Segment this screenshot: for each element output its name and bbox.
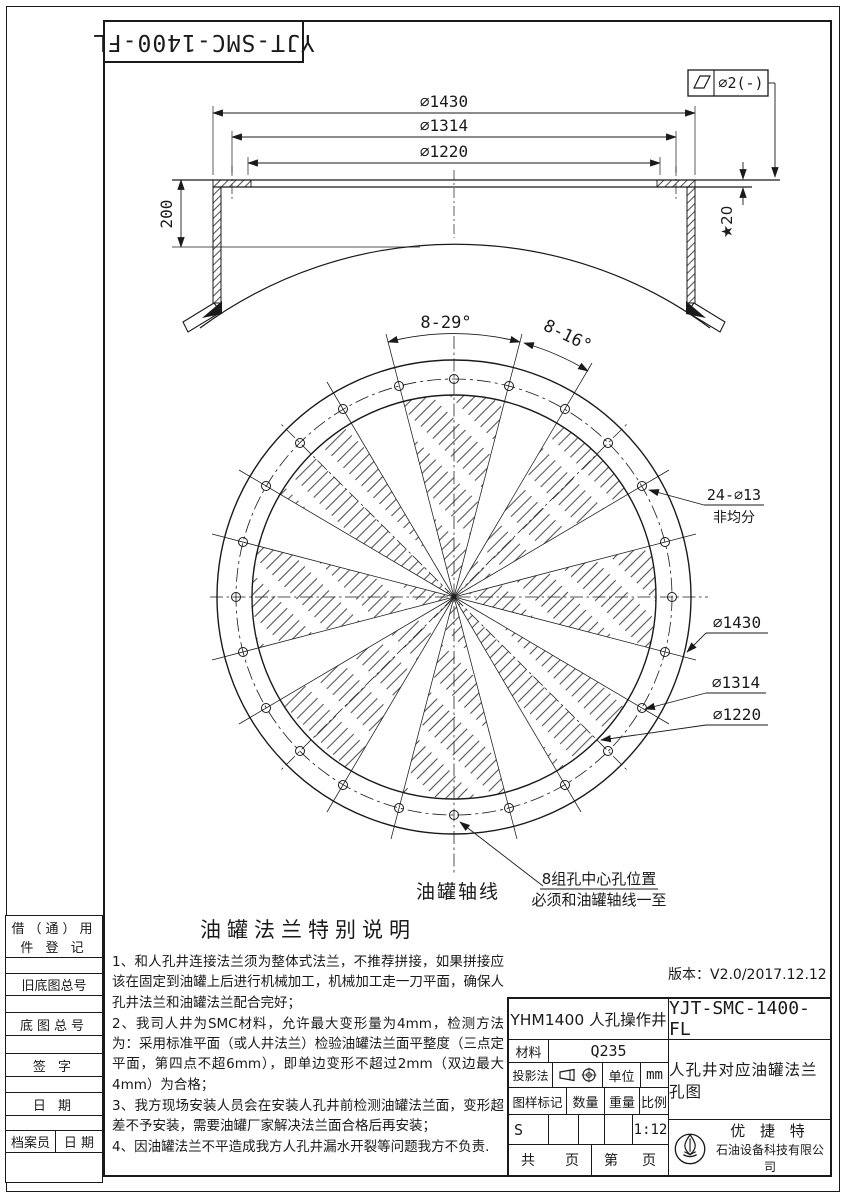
header-row: 图样标记 数量 重量 比例 (509, 1088, 668, 1115)
sheet-row: 共 页 第 页 (509, 1145, 668, 1175)
old-base-number-label: 旧底图总号 (6, 974, 102, 996)
company-cell: 优 捷 特 石油设备科技有限公司 (669, 1120, 830, 1175)
sheet-no-cell: 第 页 (592, 1145, 668, 1175)
values-empty-3 (605, 1115, 633, 1144)
note-item-2: 2、我司人井为SMC材料，允许最大变形量为4mm，检测方法为：采用标准平面（或人… (112, 1014, 504, 1095)
registry-empty-4 (6, 1077, 102, 1093)
reuse-label-line1: 借（通）用 (11, 918, 96, 937)
notes-title: 油罐法兰特别说明 (112, 914, 504, 944)
weight-label: 重量 (605, 1088, 640, 1114)
values-empty-2 (579, 1115, 605, 1144)
corner-code-box: YJT-SMC-1400-FL (103, 20, 304, 63)
model-cell: YHM1400 人孔操作井 (509, 999, 668, 1040)
corner-code-text: YJT-SMC-1400-FL (92, 29, 315, 55)
sheet-total-label: 共 (521, 1150, 535, 1170)
scale-value: 1:12 (633, 1115, 668, 1144)
version-note: 版本：V2.0/2017.12.12 (668, 964, 828, 984)
mark-value: S (509, 1115, 549, 1144)
registry-empty-3 (6, 1036, 102, 1054)
mark-label: 图样标记 (509, 1088, 567, 1114)
note-item-4: 4、因油罐法兰不平造成我方人孔井漏水开裂等问题我方不负责. (112, 1137, 504, 1157)
archivist-row: 档案员 日 期 (6, 1131, 102, 1153)
company-logo-icon (672, 1128, 708, 1168)
special-notes: 油罐法兰特别说明 1、和人孔井连接法兰须为整体式法兰，不推荐拼接，如果拼接应该在… (112, 914, 504, 1159)
projection-row: 投影法 单位 mm (509, 1063, 668, 1088)
values-empty-1 (549, 1115, 579, 1144)
material-row: 材料 Q235 (509, 1040, 668, 1063)
qty-label: 数量 (567, 1088, 605, 1114)
values-row: S 1:12 (509, 1115, 668, 1145)
base-number-label: 底图总号 (6, 1013, 102, 1036)
material-value: Q235 (549, 1040, 668, 1062)
sheet-no-label: 第 (604, 1150, 618, 1170)
title-block-right: YJT-SMC-1400-FL 人孔井对应油罐法兰孔图 优 捷 特 石油设备科技… (668, 999, 830, 1175)
title-block-left: YHM1400 人孔操作井 材料 Q235 投影法 单位 mm (509, 999, 668, 1175)
registry-empty-2 (6, 996, 102, 1013)
unit-label: 单位 (603, 1063, 641, 1087)
registry-table: 借（通）用 件 登 记 旧底图总号 底图总号 签 字 日 期 档案员 日 期 (5, 915, 103, 1183)
projection-label: 投影法 (509, 1063, 553, 1087)
projection-symbols (553, 1063, 603, 1087)
material-label: 材料 (509, 1040, 549, 1062)
signature-label: 签 字 (6, 1054, 102, 1077)
company-name: 优 捷 特 (713, 1120, 827, 1141)
registry-empty-5 (6, 1116, 102, 1131)
company-sub: 石油设备科技有限公司 (713, 1141, 827, 1175)
registry-reuse-cell: 借（通）用 件 登 记 (6, 916, 102, 958)
first-angle-cone-icon (558, 1068, 577, 1082)
sheet-total-unit: 页 (565, 1150, 579, 1170)
registry-empty-1 (6, 958, 102, 974)
reuse-label-line2: 件 登 记 (20, 937, 87, 956)
note-item-1: 1、和人孔井连接法兰须为整体式法兰，不推荐拼接，如果拼接应该在固定到油罐上后进行… (112, 952, 504, 1013)
scale-label: 比例 (640, 1088, 668, 1114)
unit-value: mm (641, 1063, 668, 1087)
projection-circle-icon (581, 1067, 597, 1083)
note-item-3: 3、我方现场安装人员会在安装人孔井前检测油罐法兰面，变形超差不予安装，需要油罐厂… (112, 1096, 504, 1137)
sheet-no-unit: 页 (642, 1150, 656, 1170)
drawing-title: 人孔井对应油罐法兰孔图 (669, 1040, 830, 1120)
registry-empty-6 (6, 1153, 102, 1182)
sheet-total-cell: 共 页 (509, 1145, 592, 1175)
archivist-label: 档案员 (6, 1131, 56, 1152)
drawing-code: YJT-SMC-1400-FL (669, 999, 830, 1040)
date-label: 日 期 (6, 1093, 102, 1116)
archive-date-label: 日 期 (56, 1131, 102, 1152)
title-block: YHM1400 人孔操作井 材料 Q235 投影法 单位 mm (507, 997, 832, 1177)
